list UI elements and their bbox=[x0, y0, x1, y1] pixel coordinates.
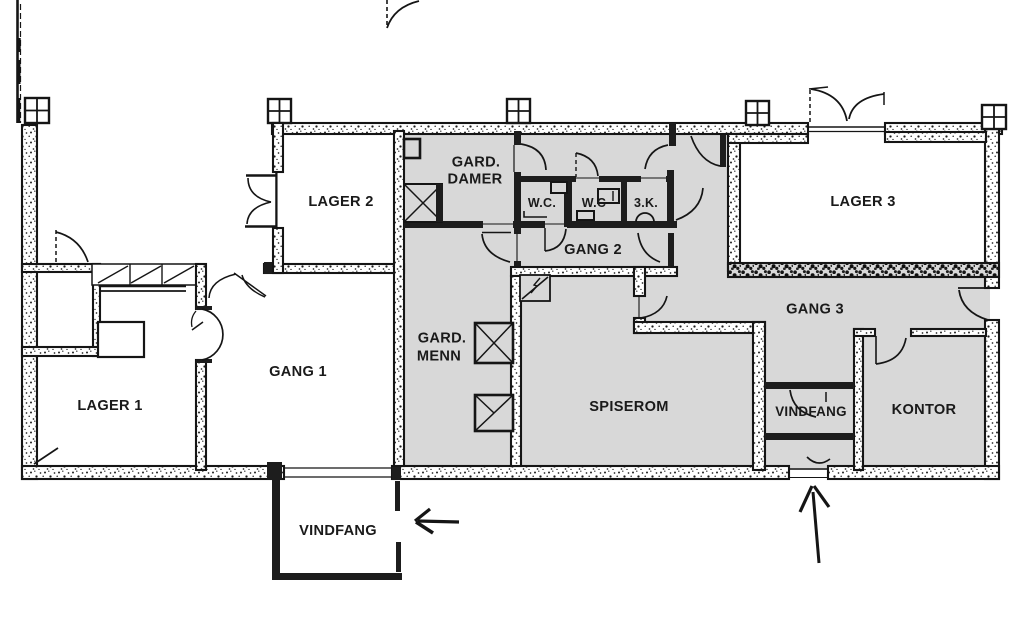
svg-text:W.C.: W.C. bbox=[528, 196, 556, 210]
svg-text:GARD.: GARD. bbox=[418, 331, 467, 347]
svg-text:LAGER 2: LAGER 2 bbox=[308, 194, 373, 210]
svg-text:GARD.: GARD. bbox=[452, 155, 501, 171]
svg-text:GANG 2: GANG 2 bbox=[564, 242, 622, 258]
svg-text:GANG 3: GANG 3 bbox=[786, 302, 844, 318]
svg-text:LAGER 3: LAGER 3 bbox=[830, 194, 895, 210]
svg-text:VINDFANG: VINDFANG bbox=[299, 523, 377, 539]
svg-text:VINDFANG: VINDFANG bbox=[775, 404, 847, 419]
svg-text:KONTOR: KONTOR bbox=[892, 402, 957, 418]
svg-text:LAGER 1: LAGER 1 bbox=[77, 398, 142, 414]
svg-text:W.C: W.C bbox=[582, 196, 607, 210]
svg-text:DAMER: DAMER bbox=[447, 172, 502, 188]
svg-text:SPISEROM: SPISEROM bbox=[589, 399, 668, 415]
svg-text:3.K.: 3.K. bbox=[634, 196, 658, 210]
svg-text:GANG 1: GANG 1 bbox=[269, 364, 327, 380]
svg-text:MENN: MENN bbox=[417, 349, 461, 365]
